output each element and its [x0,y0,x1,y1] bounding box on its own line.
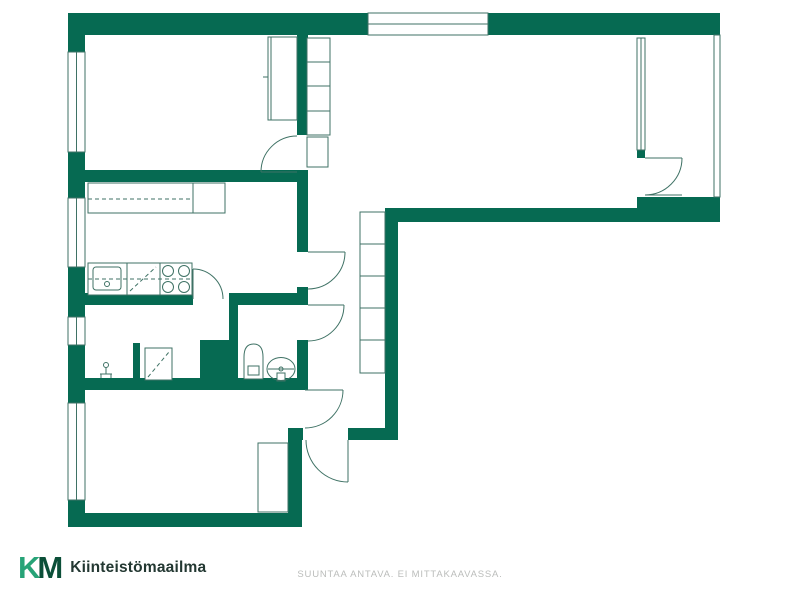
fixtures-layer [88,35,720,512]
floor-plan-canvas [0,0,800,600]
windows-layer [68,13,645,500]
floor-plan-page: KM Kiinteistömaailma SUUNTAA ANTAVA. EI … [0,0,800,600]
doors-layer [193,136,682,482]
disclaimer-text: SUUNTAA ANTAVA. EI MITTAKAAVASSA. [0,569,800,580]
